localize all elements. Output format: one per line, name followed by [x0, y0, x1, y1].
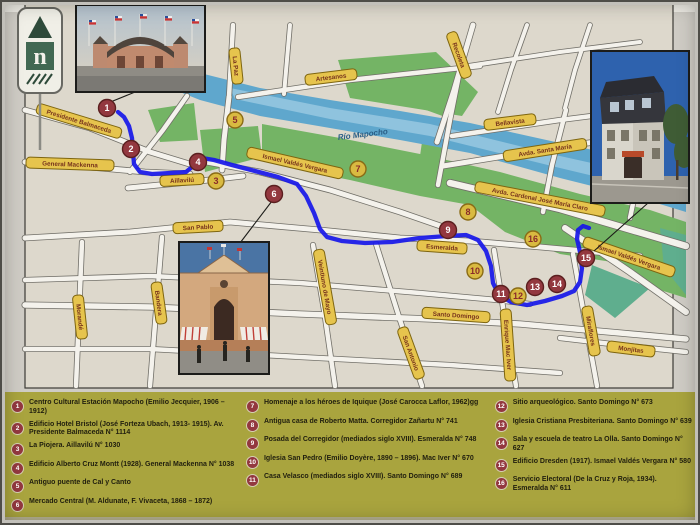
- legend-entry: 4 Edificio Alberto Cruz Montt (1928). Ge…: [11, 461, 236, 475]
- poi-marker-6: 6: [266, 186, 283, 203]
- poi-marker-number: 14: [552, 279, 562, 289]
- legend-number-badge: 9: [246, 437, 259, 450]
- poi-marker-14: 14: [549, 276, 566, 293]
- poi-marker-number: 8: [465, 207, 470, 217]
- legend-entry-text: Mercado Central (M. Aldunate, F. Vivacet…: [29, 498, 212, 507]
- legend-entry-text: Casa Velasco (mediados siglo XVIII). San…: [264, 473, 462, 482]
- poi-marker-number: 10: [470, 266, 480, 276]
- poi-marker-number: 5: [232, 115, 237, 125]
- poi-marker-11: 11: [493, 286, 510, 303]
- legend-entry-text: Sitio arqueológico. Santo Domingo N° 673: [513, 399, 653, 408]
- poi-marker-16: 16: [525, 231, 541, 247]
- poi-marker-number: 13: [530, 282, 540, 292]
- photo-estacion-mapocho: [75, 4, 206, 93]
- photo-edificio-dresden: [590, 50, 694, 204]
- legend-entry-text: Iglesia San Pedro (Emilio Doyère, 1890 –…: [264, 455, 474, 464]
- photo-mercado-central: [178, 241, 270, 375]
- poi-marker-2: 2: [123, 141, 140, 158]
- street-label: General Mackenna: [26, 157, 114, 171]
- poi-marker-number: 4: [195, 157, 200, 167]
- legend-entry: 14 Sala y escuela de teatro La Olla. San…: [495, 436, 692, 453]
- poi-marker-number: 2: [128, 144, 133, 154]
- logo-letter: n: [33, 44, 46, 70]
- legend-entry: 11 Casa Velasco (mediados siglo XVIII). …: [246, 473, 485, 487]
- paper-bottom-strip: [4, 517, 696, 521]
- legend-number-badge: 5: [11, 480, 24, 493]
- poi-marker-number: 9: [445, 225, 450, 235]
- poi-marker-5: 5: [227, 112, 243, 128]
- legend-entry: 12 Sitio arqueológico. Santo Domingo N° …: [495, 399, 692, 413]
- legend-entry-text: Iglesia Cristiana Presbiteriana. Santo D…: [513, 418, 692, 427]
- legend-entry: 3 La Piojera. Aillavilú N° 1030: [11, 442, 236, 456]
- legend-entry-text: Sala y escuela de teatro La Olla. Santo …: [513, 436, 692, 453]
- legend-entry-text: Edificio Dresden (1917). Ismael Valdés V…: [513, 458, 691, 467]
- poi-marker-number: 11: [496, 289, 506, 299]
- legend-entry: 8 Antigua casa de Roberto Matta. Corregi…: [246, 418, 485, 432]
- poi-marker-15: 15: [578, 250, 595, 267]
- legend-number-badge: 6: [11, 499, 24, 512]
- legend-entry-text: Homenaje a los héroes de Iquique (José C…: [264, 399, 478, 408]
- legend-number-badge: 4: [11, 462, 24, 475]
- legend-entry-text: Posada del Corregidor (mediados siglo XV…: [264, 436, 476, 445]
- poi-marker-number: 16: [528, 234, 538, 244]
- legend-number-badge: 1: [11, 400, 24, 413]
- legend-entry: 16 Servicio Electoral (De la Cruz y Roja…: [495, 476, 692, 493]
- legend-entry-text: La Piojera. Aillavilú N° 1030: [29, 442, 120, 451]
- poi-marker-1: 1: [99, 100, 116, 117]
- legend-entry: 15 Edificio Dresden (1917). Ismael Valdé…: [495, 458, 692, 472]
- poi-marker-4: 4: [190, 154, 207, 171]
- legend-entry-text: Servicio Electoral (De la Cruz y Roja, 1…: [513, 476, 692, 493]
- legend-number-badge: 3: [11, 443, 24, 456]
- legend-number-badge: 2: [11, 422, 24, 435]
- street-label: San Pablo: [173, 220, 224, 234]
- legend-entry-text: Edificio Hotel Bristol (José Forteza Uba…: [29, 421, 236, 438]
- legend-entry: 6 Mercado Central (M. Aldunate, F. Vivac…: [11, 498, 236, 512]
- poi-marker-number: 12: [513, 291, 523, 301]
- legend-column-1: 1 Centro Cultural Estación Mapocho (Emil…: [11, 399, 236, 515]
- legend-number-badge: 13: [495, 419, 508, 432]
- legend-entry-text: Edificio Alberto Cruz Montt (1928). Gene…: [29, 461, 234, 470]
- legend-entry: 10 Iglesia San Pedro (Emilio Doyère, 189…: [246, 455, 485, 469]
- poi-marker-number: 15: [581, 253, 591, 263]
- legend-number-badge: 14: [495, 437, 508, 450]
- poi-marker-3: 3: [208, 173, 224, 189]
- map-information-board: Río Mapocho Presidente BalmacedaGeneral …: [0, 0, 700, 525]
- legend-number-badge: 11: [246, 474, 259, 487]
- legend-entry: 5 Antiguo puente de Cal y Canto: [11, 479, 236, 493]
- tourist-map: Río Mapocho Presidente BalmacedaGeneral …: [0, 0, 700, 392]
- legend-column-3: 12 Sitio arqueológico. Santo Domingo N° …: [495, 399, 692, 515]
- legend-entry: 9 Posada del Corregidor (mediados siglo …: [246, 436, 485, 450]
- legend-number-badge: 10: [246, 456, 259, 469]
- legend-number-badge: 7: [246, 400, 259, 413]
- legend-entry-text: Centro Cultural Estación Mapocho (Emilio…: [29, 399, 236, 416]
- poi-marker-9: 9: [440, 222, 457, 239]
- legend-number-badge: 12: [495, 400, 508, 413]
- legend-number-badge: 15: [495, 459, 508, 472]
- legend-entry: 7 Homenaje a los héroes de Iquique (José…: [246, 399, 485, 413]
- legend-number-badge: 16: [495, 477, 508, 490]
- legend-entry: 13 Iglesia Cristiana Presbiteriana. Sant…: [495, 418, 692, 432]
- poi-marker-10: 10: [467, 263, 483, 279]
- poi-marker-8: 8: [460, 204, 476, 220]
- poi-marker-number: 3: [213, 176, 218, 186]
- poi-marker-number: 6: [271, 189, 276, 199]
- legend-entry-text: Antigua casa de Roberto Matta. Corregido…: [264, 418, 458, 427]
- poi-marker-7: 7: [350, 161, 366, 177]
- legend-entry: 1 Centro Cultural Estación Mapocho (Emil…: [11, 399, 236, 416]
- legend-column-2: 7 Homenaje a los héroes de Iquique (José…: [246, 399, 485, 515]
- poi-marker-12: 12: [510, 288, 526, 304]
- street-label-text: Aillavilú: [170, 177, 195, 185]
- legend-number-badge: 8: [246, 419, 259, 432]
- poi-marker-number: 7: [355, 164, 360, 174]
- poi-marker-13: 13: [527, 279, 544, 296]
- legend-entry-text: Antiguo puente de Cal y Canto: [29, 479, 131, 488]
- legend-entry: 2 Edificio Hotel Bristol (José Forteza U…: [11, 421, 236, 438]
- poi-marker-number: 1: [104, 103, 109, 113]
- legend-panel: 1 Centro Cultural Estación Mapocho (Emil…: [4, 392, 696, 517]
